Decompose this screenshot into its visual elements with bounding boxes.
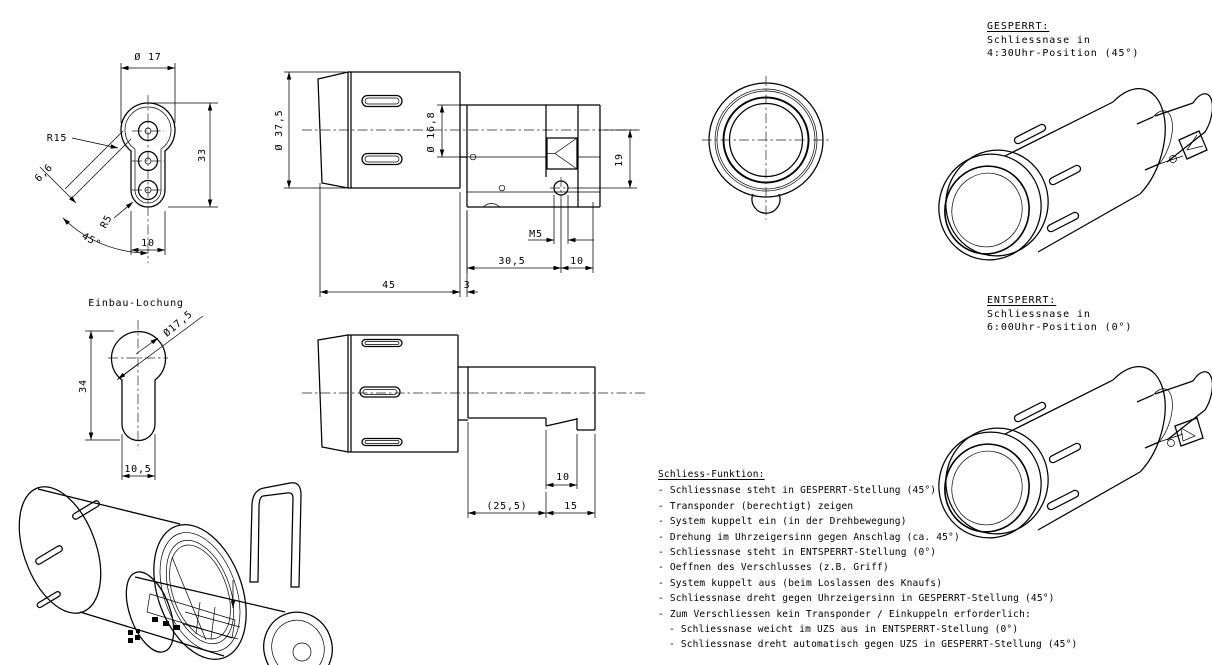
function-item: - Zum Verschliessen kein Transponder / E… bbox=[658, 607, 1077, 622]
function-item: - System kuppelt aus (beim Loslassen des… bbox=[658, 576, 1077, 591]
dim-label-45deg: 45° bbox=[80, 231, 103, 251]
dim-label-d17: Ø 17 bbox=[134, 51, 161, 63]
function-item: - Schliessnase dreht automatisch gegen U… bbox=[658, 637, 1077, 652]
function-item: - Oeffnen des Verschlusses (z.B. Griff) bbox=[658, 560, 1077, 575]
view-side-top: Ø 37,5 Ø 16,8 19 M5 30,5 10 45 3 bbox=[262, 42, 660, 304]
dim-label-34: 34 bbox=[78, 379, 89, 393]
note-gesperrt-line2: 4:30Uhr-Position (45°) bbox=[987, 47, 1139, 61]
function-item: - System kuppelt ein (in der Drehbewegun… bbox=[658, 514, 1077, 529]
dim-label-3: 3 bbox=[464, 280, 471, 291]
dim-label-10b: 10 bbox=[556, 472, 570, 483]
dim-label-r15: R15 bbox=[47, 133, 67, 144]
note-gesperrt-line1: Schliessnase in bbox=[987, 34, 1139, 48]
technical-drawing-sheet: Ø 17 33 R15 6,6 R5 45° 10 Einbau-Lochung bbox=[0, 0, 1212, 665]
view-knob-front bbox=[700, 68, 835, 230]
note-entsperrt-line1: Schliessnase in bbox=[987, 308, 1132, 322]
dim-label-45: 45 bbox=[382, 280, 396, 291]
dim-label-r5: R5 bbox=[99, 213, 115, 230]
einbau-title: Einbau-Lochung bbox=[88, 298, 184, 309]
dim-label-66: 6,6 bbox=[33, 162, 55, 184]
view-einbau-lochung: Einbau-Lochung Ø17,5 34 10,5 bbox=[30, 290, 240, 488]
note-gesperrt: GESPERRT: Schliessnase in 4:30Uhr-Positi… bbox=[987, 20, 1139, 61]
dim-label-d375: Ø 37,5 bbox=[273, 110, 285, 151]
dim-label-m5: M5 bbox=[529, 229, 543, 240]
view-front-profile: Ø 17 33 R15 6,6 R5 45° 10 bbox=[10, 5, 260, 280]
view-3d-gesperrt bbox=[935, 62, 1212, 267]
dim-label-d168: Ø 16,8 bbox=[425, 112, 437, 153]
note-entsperrt: ENTSPERRT: Schliessnase in 6:00Uhr-Posit… bbox=[987, 294, 1132, 335]
function-item: - Schliessnase steht in GESPERRT-Stellun… bbox=[658, 483, 1077, 498]
function-item: - Schliessnase steht in ENTSPERRT-Stellu… bbox=[658, 545, 1077, 560]
dim-label-10: 10 bbox=[570, 256, 584, 267]
dim-label-10: 10 bbox=[141, 238, 155, 249]
dim-label-255: (25,5) bbox=[487, 501, 528, 512]
function-item: - Transponder (berechtigt) zeigen bbox=[658, 499, 1077, 514]
function-item: - Drehung im Uhrzeigersinn gegen Anschla… bbox=[658, 530, 1077, 545]
function-item: - Schliessnase weicht im UZS aus in ENTS… bbox=[658, 622, 1077, 637]
function-item: - Schliessnase dreht gegen Uhrzeigersinn… bbox=[658, 591, 1077, 606]
dim-label-19: 19 bbox=[614, 153, 625, 167]
dim-label-15: 15 bbox=[564, 501, 578, 512]
note-function-title: Schliess-Funktion: bbox=[658, 467, 1077, 482]
view-exploded bbox=[0, 462, 345, 665]
note-entsperrt-line2: 6:00Uhr-Position (0°) bbox=[987, 321, 1132, 335]
note-gesperrt-title: GESPERRT: bbox=[987, 20, 1139, 34]
note-schliess-funktion: Schliess-Funktion: - Schliessnase steht … bbox=[658, 467, 1077, 653]
dim-label-33: 33 bbox=[197, 148, 208, 162]
note-entsperrt-title: ENTSPERRT: bbox=[987, 294, 1132, 308]
dim-label-305: 30,5 bbox=[498, 256, 525, 267]
